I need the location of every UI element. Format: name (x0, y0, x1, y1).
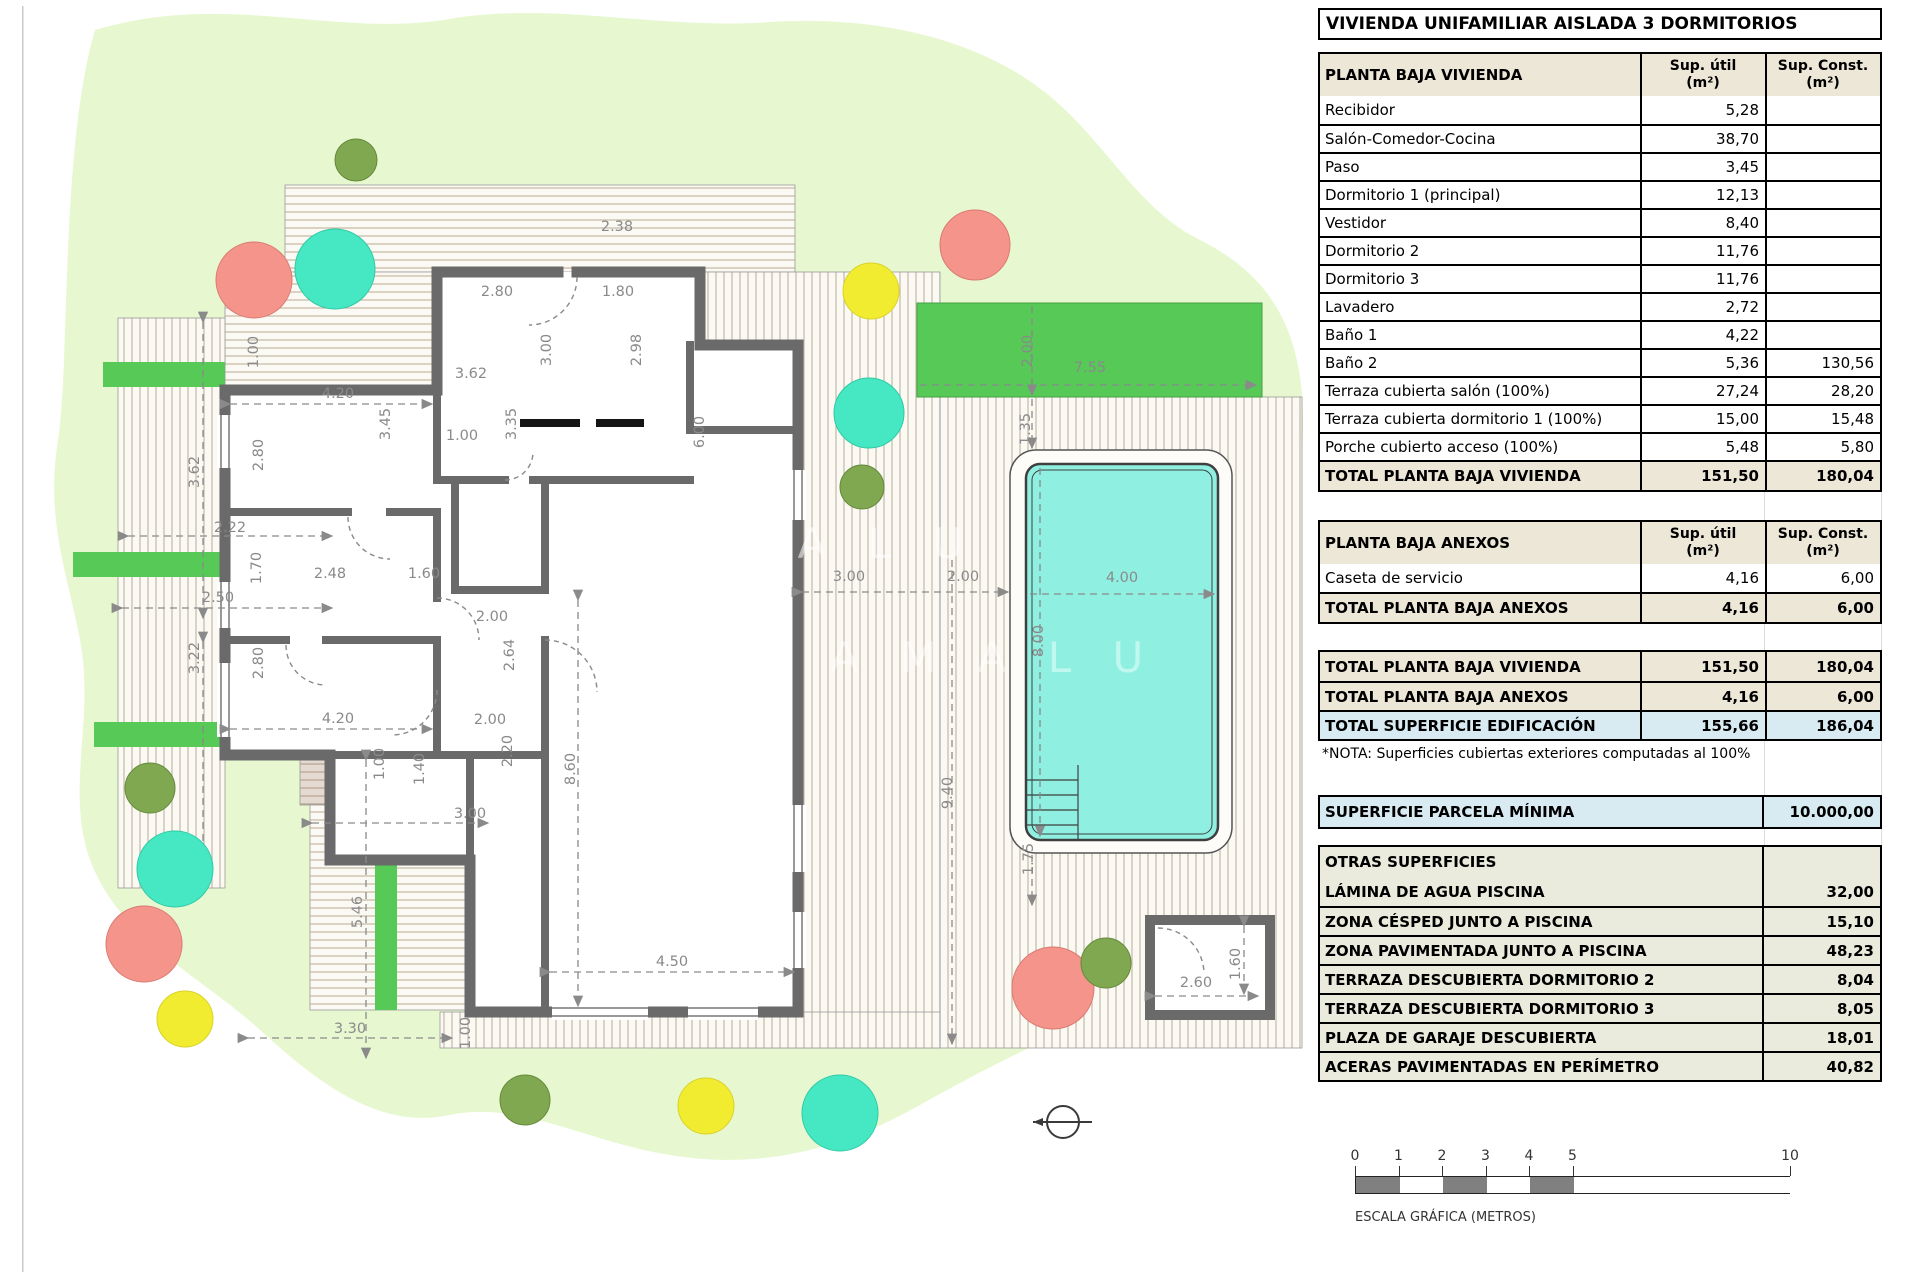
sup-const-value (1765, 294, 1880, 320)
sup-const-value (1765, 238, 1880, 264)
table-row: Baño 14,22 (1320, 320, 1880, 348)
dimension-label: 2.60 (1180, 975, 1212, 991)
row-label: Salón-Comedor-Cocina (1320, 126, 1640, 152)
surface-value: 8,05 (1762, 995, 1880, 1022)
table-row: TOTAL PLANTA BAJA VIVIENDA151,50180,04 (1320, 652, 1880, 681)
kitchen-counter (596, 419, 644, 427)
total-label: TOTAL PLANTA BAJA VIVIENDA (1320, 462, 1640, 490)
table-row: Recibidor5,28 (1320, 96, 1880, 124)
table-header-label: OTRAS SUPERFICIES (1320, 847, 1762, 877)
salmon-tree (106, 906, 182, 982)
row-label: Dormitorio 3 (1320, 266, 1640, 292)
scale-tick-label: 1 (1394, 1148, 1403, 1164)
dimension-label: 1.75 (1021, 843, 1037, 875)
dimension-label: 3.62 (455, 366, 487, 382)
table-header-row: PLANTA BAJA ANEXOS Sup. útil(m²) Sup. Co… (1320, 522, 1880, 564)
table-row: Lavadero2,72 (1320, 292, 1880, 320)
dimension-label: 3.00 (833, 569, 865, 585)
dimension-label: 2.00 (947, 569, 979, 585)
dimension-label: 2.80 (251, 439, 267, 471)
total-sup-util: 4,16 (1640, 594, 1765, 622)
table-row: Paso3,45 (1320, 152, 1880, 180)
scale-segment (1400, 1177, 1444, 1193)
sup-const-value: 28,20 (1765, 378, 1880, 404)
sup-util-value: 4,22 (1640, 322, 1765, 348)
screenshot-root: 2.382.801.803.002.981.003.624.203.453.35… (0, 0, 1920, 1280)
olive-tree (335, 139, 377, 181)
dimension-label: 2.00 (474, 712, 506, 728)
sup-util-value: 38,70 (1640, 126, 1765, 152)
grass-zone-pool (917, 303, 1262, 397)
svg-text:A M A L U: A M A L U (830, 633, 1157, 682)
table-total-row: TOTAL PLANTA BAJA ANEXOS 4,16 6,00 (1320, 592, 1880, 622)
table-header-row: PLANTA BAJA VIVIENDA Sup. útil(m²) Sup. … (1320, 54, 1880, 96)
scale-tick-label: 4 (1525, 1148, 1534, 1164)
dimension-label: 1.00 (372, 748, 388, 780)
sup-const-value: 6,00 (1765, 564, 1880, 592)
dimension-label: 5.46 (350, 896, 366, 928)
table-row: PLAZA DE GARAJE DESCUBIERTA18,01 (1320, 1022, 1880, 1051)
page-title: VIVIENDA UNIFAMILIAR AISLADA 3 DORMITORI… (1318, 8, 1882, 40)
dimension-label: 4.00 (1106, 570, 1138, 586)
total-sup-const: 6,00 (1765, 594, 1880, 622)
dimension-label: 1.60 (408, 566, 440, 582)
sup-const-value (1765, 266, 1880, 292)
graphic-scale: ESCALA GRÁFICA (METROS) 01234510 (1355, 1148, 1825, 1238)
salmon-tree (940, 210, 1010, 280)
total-label: TOTAL PLANTA BAJA ANEXOS (1320, 683, 1640, 710)
row-label: LÁMINA DE AGUA PISCINA (1320, 877, 1762, 906)
nota-text: *NOTA: Superficies cubiertas exteriores … (1322, 746, 1882, 762)
table-row: Porche cubierto acceso (100%)5,485,80 (1320, 432, 1880, 460)
table-row: TERRAZA DESCUBIERTA DORMITORIO 28,04 (1320, 964, 1880, 993)
sup-util-value: 4,16 (1640, 683, 1765, 710)
turquoise-tree (137, 831, 213, 907)
empty-header-cell (1762, 847, 1880, 877)
table-row: Dormitorio 311,76 (1320, 264, 1880, 292)
yellow-tree (678, 1078, 734, 1134)
row-label: TERRAZA DESCUBIERTA DORMITORIO 2 (1320, 966, 1762, 993)
table-row: ACERAS PAVIMENTADAS EN PERÍMETRO40,82 (1320, 1051, 1880, 1080)
dimension-label: 9.40 (940, 777, 956, 809)
turquoise-tree (295, 229, 375, 309)
dimension-label: 1.60 (1228, 948, 1244, 980)
dimension-label: 2.00 (1020, 335, 1036, 367)
scale-tick-mark (1355, 1166, 1356, 1176)
sup-const-value: 6,00 (1765, 683, 1880, 710)
table-row: Baño 25,36130,56 (1320, 348, 1880, 376)
scale-segment (1487, 1177, 1531, 1193)
total-sup-const: 180,04 (1765, 462, 1880, 490)
table-row: ZONA CÉSPED JUNTO A PISCINA15,10 (1320, 906, 1880, 935)
site-plan: 2.382.801.803.002.981.003.624.203.453.35… (0, 0, 1320, 1280)
surface-value: 32,00 (1762, 877, 1880, 906)
sup-util-value: 11,76 (1640, 266, 1765, 292)
scale-tick-label: 3 (1481, 1148, 1490, 1164)
dimension-label: 4.50 (656, 954, 688, 970)
col-header-sup-util: Sup. útil(m²) (1640, 522, 1765, 564)
dimension-label: 3.62 (187, 456, 203, 488)
surface-value: 48,23 (1762, 937, 1880, 964)
row-label: Baño 2 (1320, 350, 1640, 376)
salmon-tree (216, 242, 292, 318)
dimension-label: 2.50 (202, 590, 234, 606)
scale-tick-mark (1529, 1166, 1530, 1176)
dimension-label: 1.00 (446, 428, 478, 444)
dimension-label: 4.20 (322, 711, 354, 727)
table-header-row: OTRAS SUPERFICIES (1320, 847, 1880, 877)
dimension-label: 2.80 (481, 284, 513, 300)
scale-tick-mark (1442, 1166, 1443, 1176)
sup-util-value: 5,36 (1640, 350, 1765, 376)
dimension-label: 1.40 (412, 753, 428, 785)
yellow-tree (157, 991, 213, 1047)
sup-const-value: 186,04 (1765, 712, 1880, 739)
row-label: Baño 1 (1320, 322, 1640, 348)
total-label: TOTAL SUPERFICIE EDIFICACIÓN (1320, 712, 1640, 739)
row-label: Recibidor (1320, 96, 1640, 124)
table-row: Terraza cubierta dormitorio 1 (100%)15,0… (1320, 404, 1880, 432)
scale-tick-mark (1399, 1166, 1400, 1176)
sup-const-value (1765, 126, 1880, 152)
surface-value: 18,01 (1762, 1024, 1880, 1051)
table-planta-baja-anexos: PLANTA BAJA ANEXOS Sup. útil(m²) Sup. Co… (1318, 520, 1882, 624)
olive-tree (1081, 938, 1131, 988)
dimension-label: 3.00 (454, 806, 486, 822)
parcela-value: 10.000,00 (1762, 797, 1880, 827)
dimension-label: 3.22 (187, 642, 203, 674)
sup-const-value (1765, 154, 1880, 180)
dimension-label: 1.70 (249, 552, 265, 584)
row-label: Caseta de servicio (1320, 564, 1640, 592)
surface-value: 15,10 (1762, 908, 1880, 935)
sup-util-value: 8,40 (1640, 210, 1765, 236)
sup-util-value: 5,48 (1640, 434, 1765, 460)
scale-segment (1443, 1177, 1487, 1193)
dimension-label: 2.38 (601, 219, 633, 235)
kitchen-counter (520, 419, 580, 427)
sup-const-value (1765, 182, 1880, 208)
sup-const-value: 5,80 (1765, 434, 1880, 460)
sup-util-value: 151,50 (1640, 652, 1765, 681)
scale-segment (1574, 1177, 1792, 1193)
dimension-label: 1.00 (458, 1017, 474, 1049)
dimension-label: 2.98 (629, 334, 645, 366)
dimension-label: 2.20 (500, 735, 516, 767)
scale-bar (1355, 1176, 1790, 1194)
table-row: TOTAL SUPERFICIE EDIFICACIÓN155,66186,04 (1320, 710, 1880, 739)
sup-const-value: 180,04 (1765, 652, 1880, 681)
sup-const-value: 130,56 (1765, 350, 1880, 376)
dimension-label: 4.20 (322, 386, 354, 402)
sup-const-value (1765, 96, 1880, 124)
table-row: Caseta de servicio4,166,00 (1320, 564, 1880, 592)
table-row: TERRAZA DESCUBIERTA DORMITORIO 38,05 (1320, 993, 1880, 1022)
scale-tick-label: 10 (1781, 1148, 1799, 1164)
scale-tick-label: 0 (1351, 1148, 1360, 1164)
row-label: PLAZA DE GARAJE DESCUBIERTA (1320, 1024, 1762, 1051)
table-parcela-minima: SUPERFICIE PARCELA MÍNIMA 10.000,00 (1318, 795, 1882, 829)
row-label: Paso (1320, 154, 1640, 180)
table-planta-baja-vivienda: PLANTA BAJA VIVIENDA Sup. útil(m²) Sup. … (1318, 52, 1882, 492)
table-row: Terraza cubierta salón (100%)27,2428,20 (1320, 376, 1880, 404)
dimension-label: 3.35 (504, 408, 520, 440)
olive-tree (125, 763, 175, 813)
row-label: Terraza cubierta dormitorio 1 (100%) (1320, 406, 1640, 432)
sup-util-value: 15,00 (1640, 406, 1765, 432)
table-row: Vestidor8,40 (1320, 208, 1880, 236)
page-border-line (22, 6, 24, 1272)
table-row: Dormitorio 1 (principal)12,13 (1320, 180, 1880, 208)
scale-tick-mark (1790, 1166, 1791, 1176)
scale-tick-label: 5 (1568, 1148, 1577, 1164)
sup-util-value: 5,28 (1640, 96, 1765, 124)
dimension-label: 2.48 (314, 566, 346, 582)
surface-value: 40,82 (1762, 1053, 1880, 1080)
row-label: ZONA CÉSPED JUNTO A PISCINA (1320, 908, 1762, 935)
table-row: SUPERFICIE PARCELA MÍNIMA 10.000,00 (1320, 797, 1880, 827)
sup-util-value: 27,24 (1640, 378, 1765, 404)
sup-util-value: 12,13 (1640, 182, 1765, 208)
sup-util-value: 3,45 (1640, 154, 1765, 180)
olive-tree (840, 465, 884, 509)
dimension-label: 1.80 (602, 284, 634, 300)
table-row: Dormitorio 211,76 (1320, 236, 1880, 264)
dimension-label: 2.80 (251, 647, 267, 679)
dimension-label: 1.00 (246, 336, 262, 368)
turquoise-tree (834, 378, 904, 448)
sup-const-value: 15,48 (1765, 406, 1880, 432)
scale-tick-mark (1573, 1166, 1574, 1176)
row-label: ZONA PAVIMENTADA JUNTO A PISCINA (1320, 937, 1762, 964)
dimension-label: 6.00 (692, 416, 708, 448)
compass-icon (1033, 1106, 1092, 1138)
dimension-label: 3.45 (378, 408, 394, 440)
sup-const-value (1765, 322, 1880, 348)
total-label: TOTAL PLANTA BAJA VIVIENDA (1320, 652, 1640, 681)
scale-tick-label: 2 (1438, 1148, 1447, 1164)
scale-tick-mark (1486, 1166, 1487, 1176)
yellow-tree (843, 263, 899, 319)
table-row: LÁMINA DE AGUA PISCINA32,00 (1320, 877, 1880, 906)
dimension-label: 3.00 (539, 334, 555, 366)
sup-util-value: 4,16 (1640, 564, 1765, 592)
table-otras-superficies: OTRAS SUPERFICIES LÁMINA DE AGUA PISCINA… (1318, 845, 1882, 1082)
row-label: Vestidor (1320, 210, 1640, 236)
col-header-sup-const: Sup. Const.(m²) (1765, 522, 1880, 564)
table-header-label: PLANTA BAJA ANEXOS (1320, 522, 1640, 564)
row-label: Terraza cubierta salón (100%) (1320, 378, 1640, 404)
dimension-label: 2.22 (214, 520, 246, 536)
dimension-label: 2.00 (476, 609, 508, 625)
dimension-label: 8.60 (563, 753, 579, 785)
table-totales: TOTAL PLANTA BAJA VIVIENDA151,50180,04TO… (1318, 650, 1882, 741)
dimension-label: 7.55 (1074, 360, 1106, 376)
svg-text:A M A L U: A M A L U (650, 519, 977, 568)
dimension-label: 3.30 (334, 1021, 366, 1037)
row-label: ACERAS PAVIMENTADAS EN PERÍMETRO (1320, 1053, 1762, 1080)
sup-const-value (1765, 210, 1880, 236)
sup-util-value: 2,72 (1640, 294, 1765, 320)
scale-segment (1530, 1177, 1574, 1193)
row-label: TERRAZA DESCUBIERTA DORMITORIO 3 (1320, 995, 1762, 1022)
table-row: ZONA PAVIMENTADA JUNTO A PISCINA48,23 (1320, 935, 1880, 964)
turquoise-tree (802, 1075, 878, 1151)
parcela-label: SUPERFICIE PARCELA MÍNIMA (1320, 797, 1762, 827)
table-row: Salón-Comedor-Cocina38,70 (1320, 124, 1880, 152)
dimension-label: 1.35 (1018, 413, 1034, 445)
sup-util-value: 155,66 (1640, 712, 1765, 739)
table-row: TOTAL PLANTA BAJA ANEXOS4,166,00 (1320, 681, 1880, 710)
sup-util-value: 11,76 (1640, 238, 1765, 264)
col-header-sup-const: Sup. Const.(m²) (1765, 54, 1880, 96)
total-sup-util: 151,50 (1640, 462, 1765, 490)
col-header-sup-util: Sup. útil(m²) (1640, 54, 1765, 96)
dimension-label: 2.64 (502, 639, 518, 671)
row-label: Dormitorio 1 (principal) (1320, 182, 1640, 208)
surface-value: 8,04 (1762, 966, 1880, 993)
olive-tree (500, 1075, 550, 1125)
row-label: Dormitorio 2 (1320, 238, 1640, 264)
scale-caption: ESCALA GRÁFICA (METROS) (1355, 1210, 1536, 1225)
total-label: TOTAL PLANTA BAJA ANEXOS (1320, 594, 1640, 622)
table-header-label: PLANTA BAJA VIVIENDA (1320, 54, 1640, 96)
table-total-row: TOTAL PLANTA BAJA VIVIENDA 151,50 180,04 (1320, 460, 1880, 490)
service-hut (1150, 920, 1270, 1015)
row-label: Porche cubierto acceso (100%) (1320, 434, 1640, 460)
row-label: Lavadero (1320, 294, 1640, 320)
scale-segment (1356, 1177, 1400, 1193)
